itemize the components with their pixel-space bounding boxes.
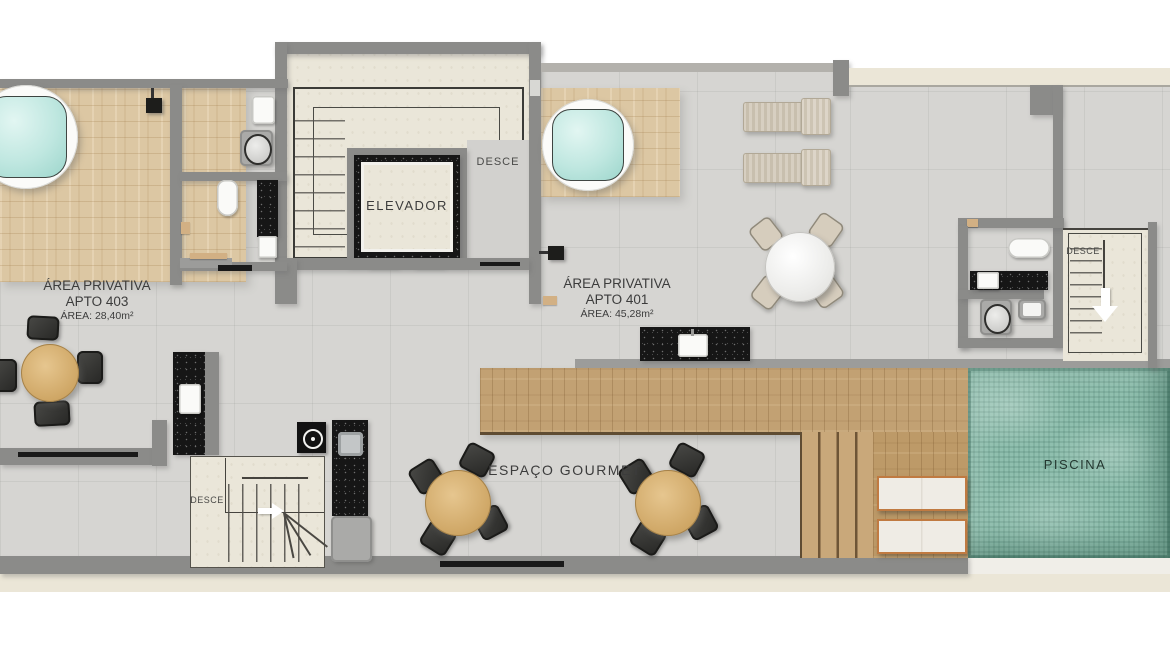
- wall-stairs-right-east: [1148, 222, 1157, 368]
- wall-bath-left: [170, 85, 182, 285]
- chair: [33, 400, 70, 427]
- sun-lounger: [743, 102, 805, 132]
- wall-sconce: [146, 98, 162, 113]
- jacuzzi-water: [552, 109, 624, 181]
- unit-403-area: ÁREA: 28,40m²: [18, 311, 176, 323]
- elevator-label: ELEVADOR: [347, 199, 467, 214]
- pool-lounger: [877, 476, 967, 511]
- unit-401-line2: APTO 401: [538, 292, 696, 307]
- door-threshold: [967, 219, 978, 227]
- wall-stub: [152, 420, 167, 466]
- toilet: [217, 180, 238, 216]
- pool-lounger: [877, 519, 967, 554]
- washer: [240, 130, 273, 166]
- outer-parapet-bottom: [0, 574, 1170, 592]
- unit-401-area: ÁREA: 45,28m²: [538, 309, 696, 321]
- small-sink: [1018, 299, 1046, 320]
- down-arrow-icon: [1092, 306, 1118, 322]
- pool-deck-steps: [800, 432, 875, 558]
- pool-edge-bottom: [968, 556, 1170, 574]
- counter-sink: [258, 236, 277, 258]
- chair: [77, 351, 103, 384]
- right-arrow-icon: [272, 503, 284, 519]
- gourmet-label: ESPAÇO GOURMET: [470, 463, 660, 479]
- shelf-wood: [190, 253, 227, 259]
- unit-403-line2: APTO 403: [18, 294, 176, 309]
- unit-403-label: ÁREA PRIVATIVA APTO 403 ÁREA: 28,40m²: [18, 278, 176, 323]
- sun-lounger-backrest: [801, 149, 831, 186]
- dining-table-403: [21, 344, 79, 402]
- wall-right-bath-west: [958, 226, 968, 348]
- sliding-door-track: [218, 265, 252, 271]
- pillar: [833, 60, 849, 96]
- floor-plan: PISCINA DESCE ELEVADOR: [0, 0, 1170, 659]
- wall-core-top: [275, 42, 541, 54]
- jacuzzi-401: [542, 99, 634, 191]
- faucet: [691, 329, 694, 336]
- cooktop: [297, 422, 326, 453]
- right-arrow-icon: [258, 508, 272, 514]
- door-threshold: [181, 222, 190, 234]
- toilet: [1008, 238, 1050, 258]
- door-gap: [530, 80, 540, 96]
- burner: [303, 429, 323, 449]
- gourmet-table: [635, 470, 701, 536]
- gourmet-deck-walkway: [480, 368, 800, 435]
- sliding-door-track: [18, 452, 138, 457]
- gourmet-table: [425, 470, 491, 536]
- wall-right-bath-mid: [958, 290, 1044, 299]
- unit-401-line1: ÁREA PRIVATIVA: [538, 276, 696, 291]
- stair-rail-line: [242, 477, 308, 479]
- parapet-right-top: [849, 68, 1170, 87]
- washer: [980, 299, 1012, 335]
- counter-sink: [977, 272, 999, 289]
- marble-dining-table: [765, 232, 835, 302]
- steel-sink: [338, 432, 363, 456]
- pool-deck-upper: [800, 368, 968, 432]
- door-line: [480, 262, 520, 266]
- unit-401-label: ÁREA PRIVATIVA APTO 401 ÁREA: 45,28m²: [538, 276, 696, 321]
- bathroom-counter: [257, 180, 278, 237]
- stair-treads: [295, 120, 345, 254]
- sun-lounger: [743, 153, 805, 183]
- grill-appliance: [331, 516, 372, 562]
- pool-label: PISCINA: [1010, 458, 1140, 473]
- sliding-door-track: [440, 561, 564, 567]
- stair-landing-label: DESCE: [467, 156, 529, 169]
- stairs-right-label: DESCE: [1060, 246, 1106, 256]
- unit-403-line1: ÁREA PRIVATIVA: [18, 278, 176, 293]
- washer-drum: [984, 304, 1011, 334]
- wall-right-bath-bottom: [958, 338, 1064, 348]
- washer-drum: [244, 134, 272, 165]
- wall-kitchen-403: [205, 352, 219, 455]
- down-arrow-icon: [1101, 288, 1110, 308]
- sun-lounger-backrest: [801, 98, 831, 135]
- wall-right-bath-east: [1053, 85, 1063, 348]
- jacuzzi-water: [0, 96, 67, 178]
- wall-top-left: [0, 79, 288, 88]
- kitchen-sink: [179, 384, 201, 414]
- stairs-bottom-left-label: DESCE: [180, 495, 234, 505]
- parapet-center-top: [541, 63, 833, 72]
- wall-tv: [548, 246, 564, 260]
- stair-treads: [1070, 248, 1102, 336]
- island-sink: [678, 334, 708, 357]
- chair: [0, 359, 17, 392]
- bathroom-sink: [252, 96, 275, 124]
